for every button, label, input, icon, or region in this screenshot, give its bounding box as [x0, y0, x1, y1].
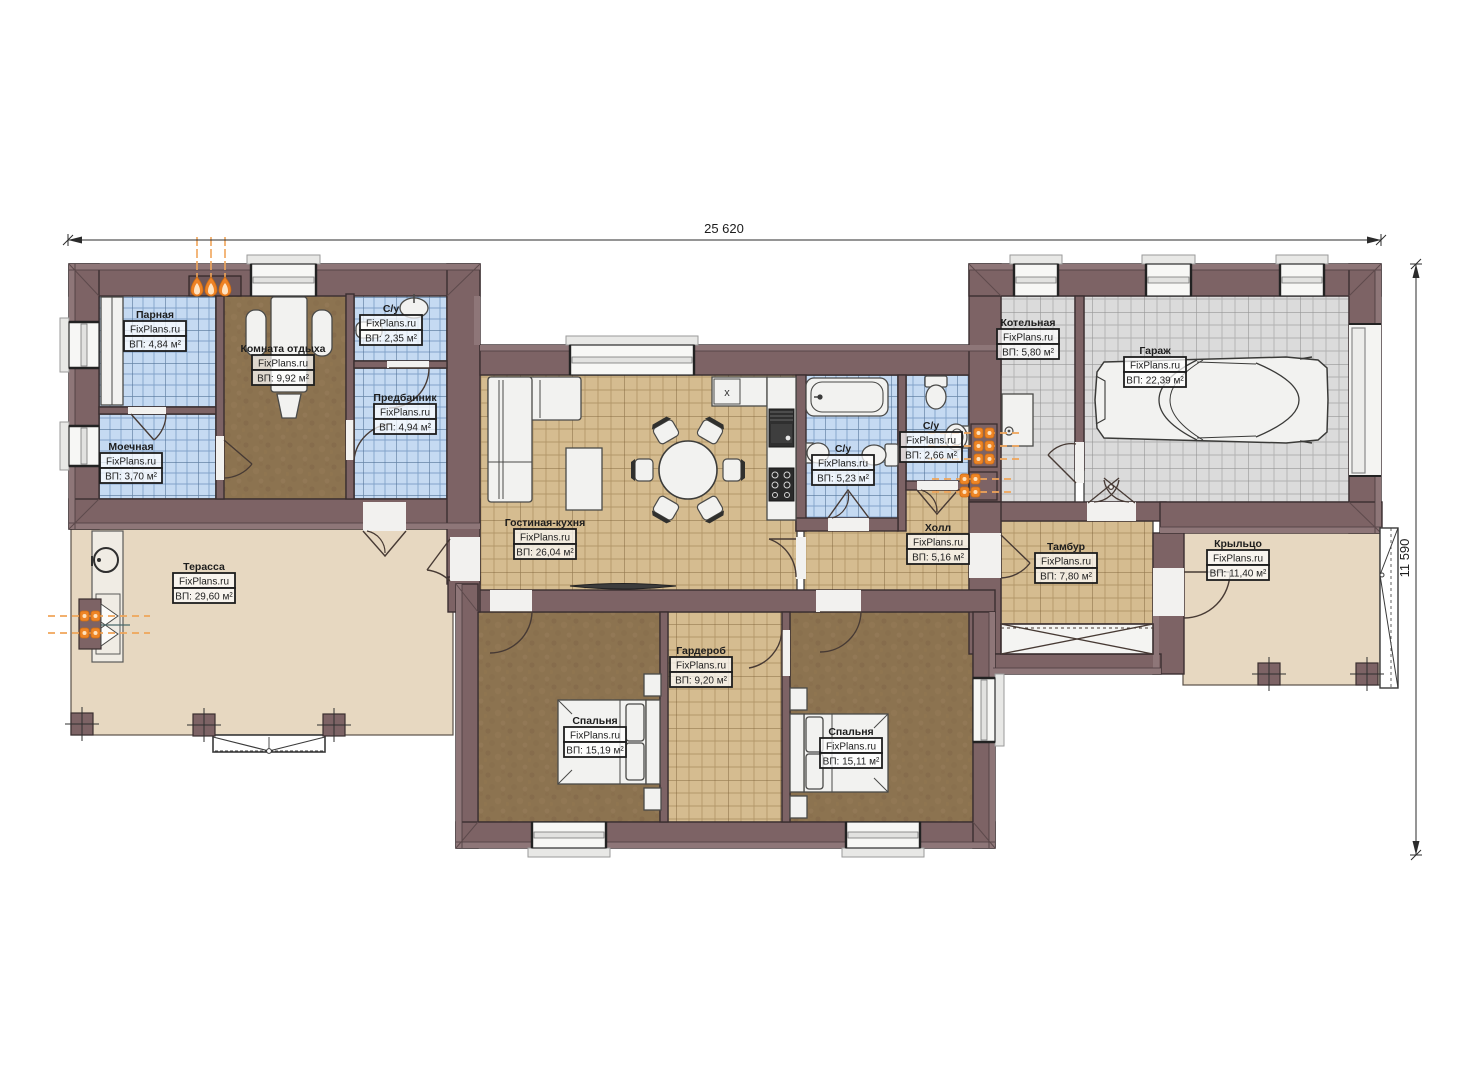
- svg-text:FixPlans.ru: FixPlans.ru: [676, 661, 726, 672]
- svg-text:ВП: 15,19 м²: ВП: 15,19 м²: [566, 746, 624, 757]
- svg-text:С/у: С/у: [923, 420, 940, 432]
- svg-text:С/у: С/у: [383, 303, 400, 315]
- svg-text:FixPlans.ru: FixPlans.ru: [380, 408, 430, 419]
- svg-text:FixPlans.ru: FixPlans.ru: [1130, 361, 1180, 372]
- svg-text:Спальня: Спальня: [572, 715, 617, 727]
- svg-text:Гардероб: Гардероб: [676, 645, 726, 657]
- svg-text:ВП: 22,39 м²: ВП: 22,39 м²: [1126, 376, 1184, 387]
- svg-text:ВП: 5,16 м²: ВП: 5,16 м²: [912, 553, 965, 564]
- svg-text:Спальня: Спальня: [828, 726, 873, 738]
- svg-text:Гостиная-кухня: Гостиная-кухня: [505, 517, 585, 529]
- svg-text:FixPlans.ru: FixPlans.ru: [179, 577, 229, 588]
- svg-text:Тамбур: Тамбур: [1047, 541, 1085, 553]
- svg-text:ВП: 3,70 м²: ВП: 3,70 м²: [105, 472, 158, 483]
- svg-text:FixPlans.ru: FixPlans.ru: [570, 731, 620, 742]
- svg-text:ВП: 5,80 м²: ВП: 5,80 м²: [1002, 348, 1055, 359]
- svg-text:Комната отдыха: Комната отдыха: [241, 343, 326, 355]
- svg-text:FixPlans.ru: FixPlans.ru: [106, 457, 156, 468]
- svg-text:x: x: [724, 387, 730, 399]
- svg-text:FixPlans.ru: FixPlans.ru: [1003, 333, 1053, 344]
- svg-text:FixPlans.ru: FixPlans.ru: [520, 533, 570, 544]
- svg-text:25 620: 25 620: [704, 221, 744, 236]
- svg-text:FixPlans.ru: FixPlans.ru: [818, 459, 868, 470]
- svg-text:ВП: 11,40 м²: ВП: 11,40 м²: [1210, 569, 1267, 580]
- svg-text:Предбанник: Предбанник: [373, 392, 437, 404]
- svg-text:FixPlans.ru: FixPlans.ru: [130, 325, 180, 336]
- svg-text:FixPlans.ru: FixPlans.ru: [258, 359, 308, 370]
- svg-text:Моечная: Моечная: [108, 441, 153, 453]
- svg-text:Терасса: Терасса: [183, 561, 225, 573]
- svg-text:Котельная: Котельная: [1001, 317, 1056, 329]
- svg-text:ВП: 29,60 м²: ВП: 29,60 м²: [175, 592, 233, 603]
- svg-text:Крыльцо: Крыльцо: [1214, 538, 1262, 550]
- svg-text:FixPlans.ru: FixPlans.ru: [826, 742, 876, 753]
- svg-text:ВП: 5,23 м²: ВП: 5,23 м²: [817, 474, 870, 485]
- svg-text:11 590: 11 590: [1397, 539, 1412, 578]
- svg-text:ВП: 2,66 м²: ВП: 2,66 м²: [905, 451, 958, 462]
- svg-text:FixPlans.ru: FixPlans.ru: [906, 436, 956, 447]
- svg-text:ВП: 4,94 м²: ВП: 4,94 м²: [379, 423, 432, 434]
- svg-text:Холл: Холл: [925, 522, 951, 534]
- svg-text:ВП: 2,35 м²: ВП: 2,35 м²: [365, 334, 418, 345]
- svg-text:Парная: Парная: [136, 309, 174, 321]
- svg-text:FixPlans.ru: FixPlans.ru: [366, 319, 416, 330]
- svg-text:ВП: 7,80 м²: ВП: 7,80 м²: [1040, 572, 1093, 583]
- svg-text:FixPlans.ru: FixPlans.ru: [913, 538, 963, 549]
- svg-text:ВП: 26,04 м²: ВП: 26,04 м²: [516, 548, 574, 559]
- svg-text:Гараж: Гараж: [1139, 345, 1171, 357]
- svg-text:ВП: 9,92 м²: ВП: 9,92 м²: [257, 374, 310, 385]
- svg-text:ВП: 15,11 м²: ВП: 15,11 м²: [823, 757, 880, 768]
- svg-text:ВП: 9,20 м²: ВП: 9,20 м²: [675, 676, 728, 687]
- svg-text:С/у: С/у: [835, 443, 852, 455]
- svg-text:FixPlans.ru: FixPlans.ru: [1041, 557, 1091, 568]
- svg-text:ВП: 4,84 м²: ВП: 4,84 м²: [129, 340, 182, 351]
- svg-text:FixPlans.ru: FixPlans.ru: [1213, 554, 1263, 565]
